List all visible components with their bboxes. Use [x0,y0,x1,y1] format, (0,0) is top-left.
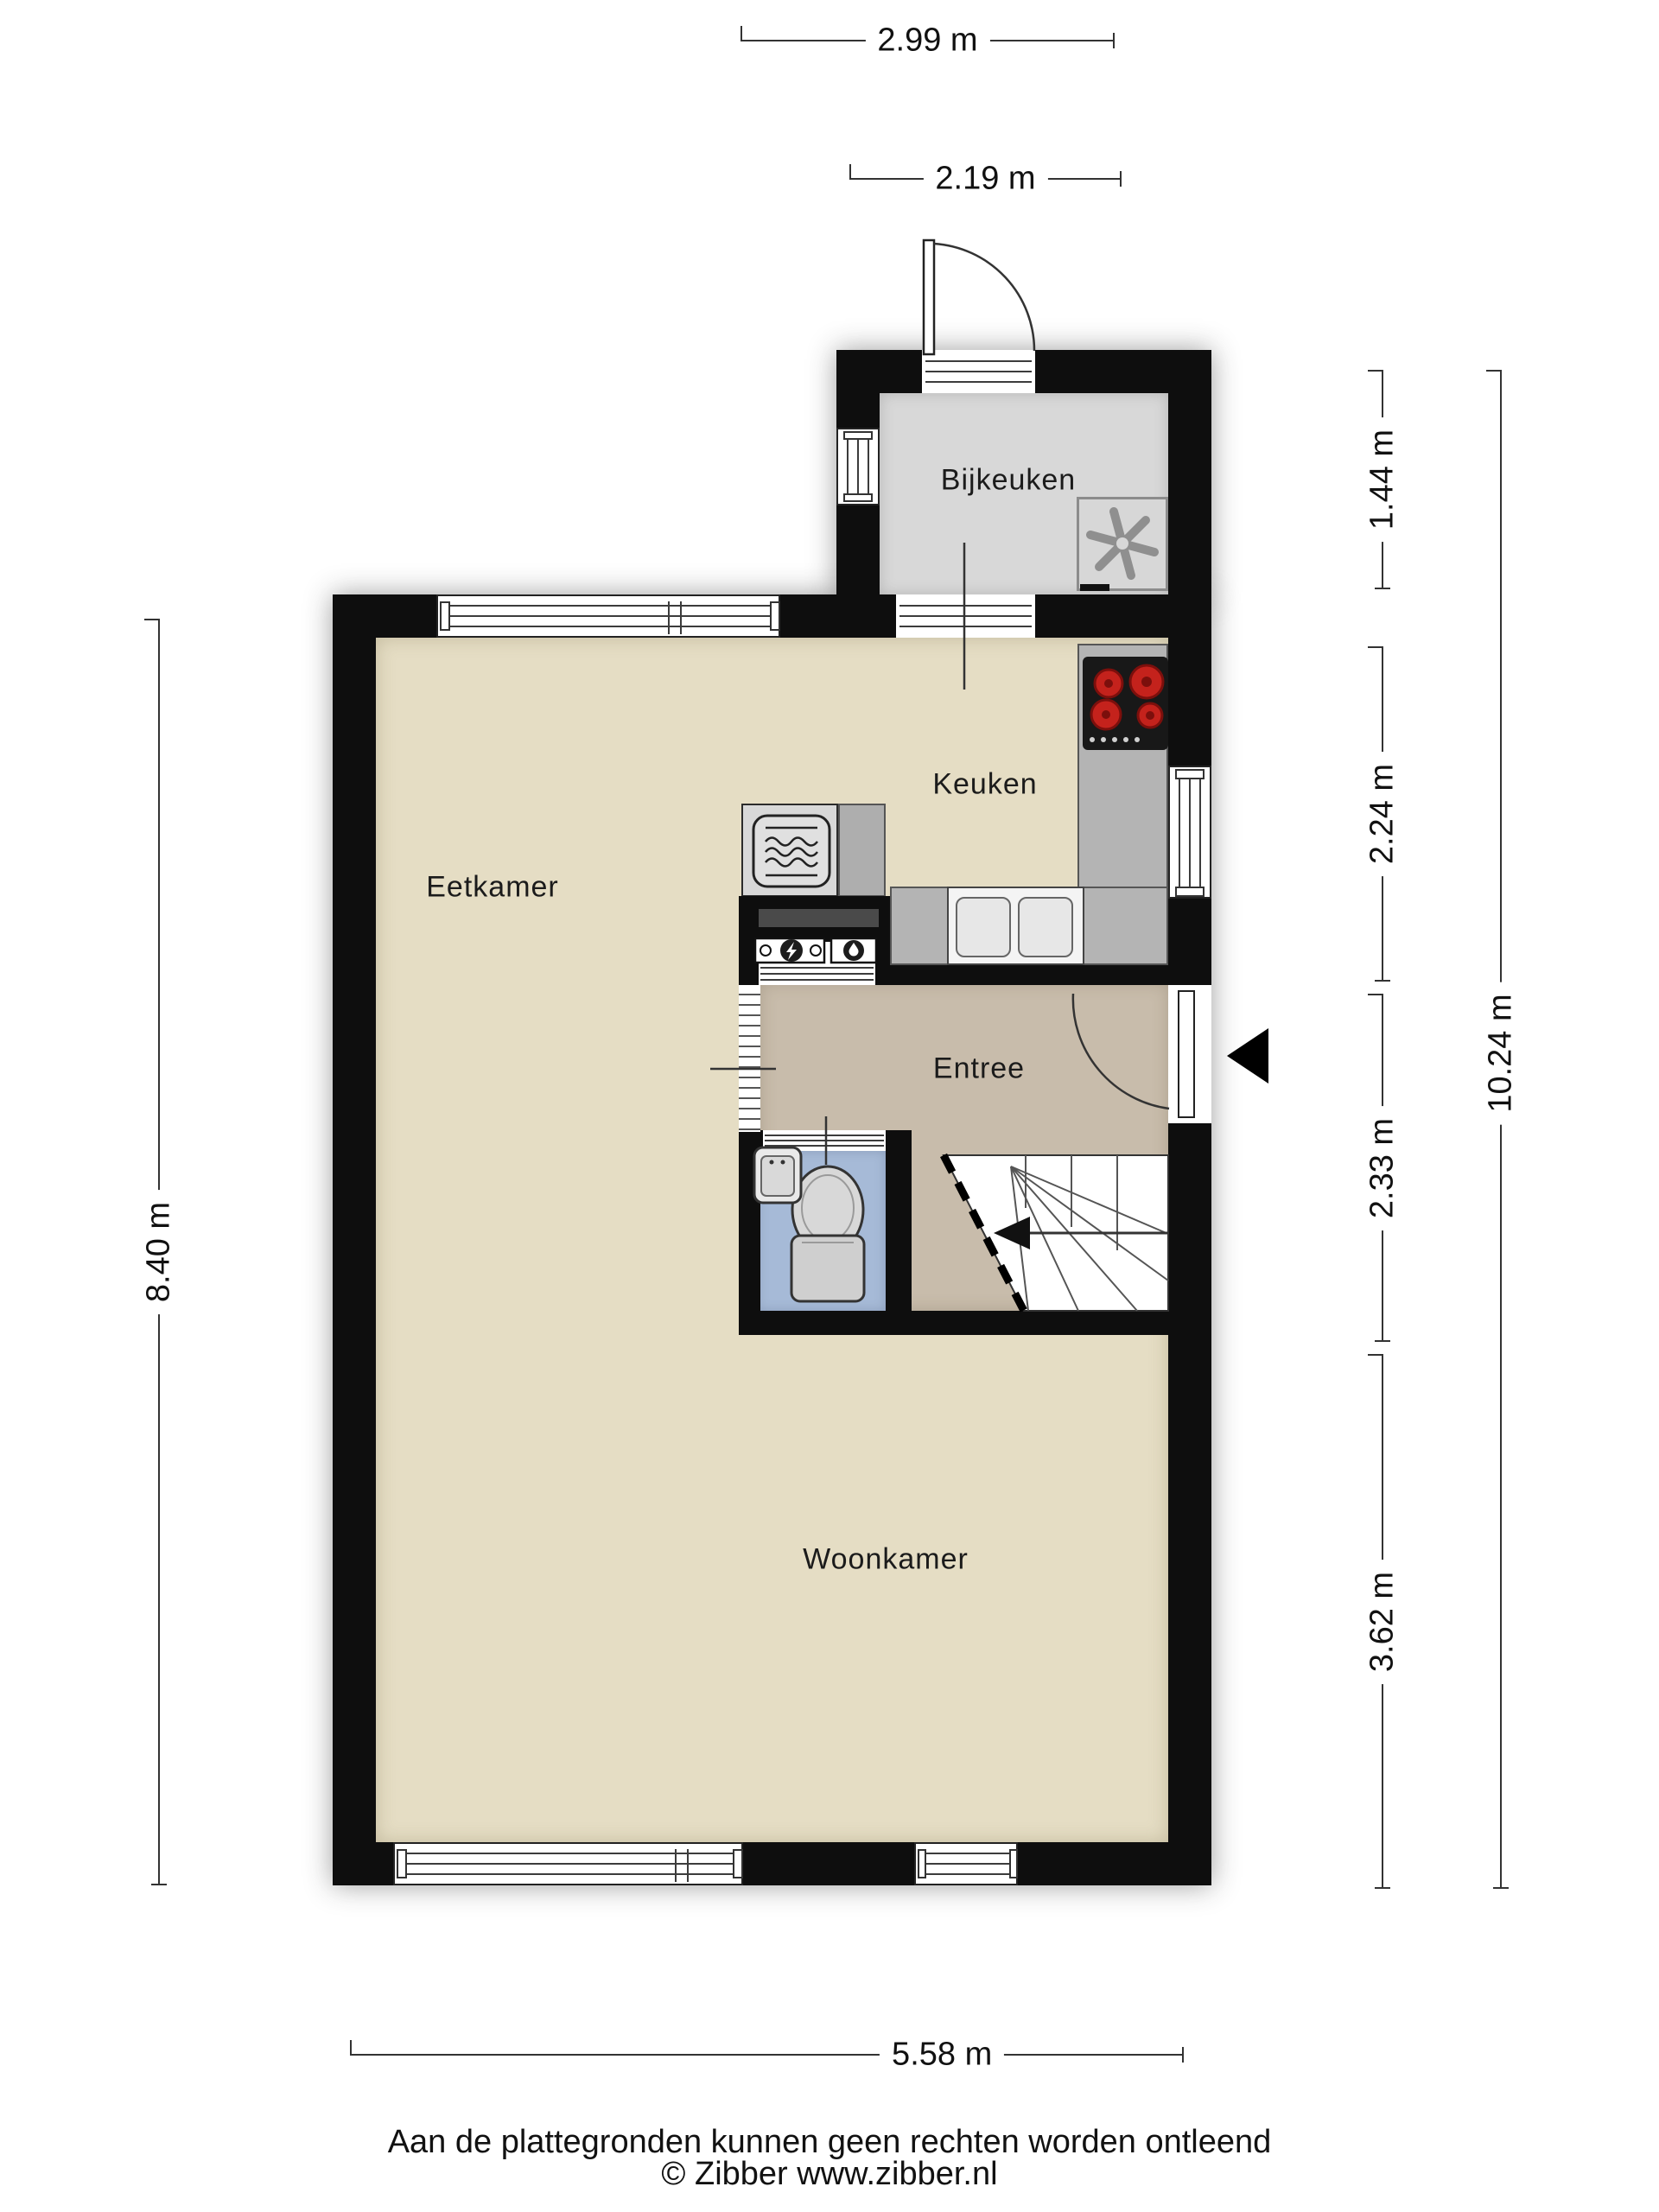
dimension-label: 2.24 m [1363,752,1403,876]
dimension-label: 8.40 m [139,1190,180,1314]
dimension-left-height: 8.40 m [152,619,166,1885]
room-label-bijkeuken: Bijkeuken [941,464,1076,498]
plan-linework [0,0,1659,2212]
room-label-keuken: Keuken [932,768,1037,802]
entrance-arrow-icon [1227,1028,1268,1084]
hand-basin-icon [754,1147,801,1203]
staircase [944,1155,1168,1311]
room-label-entree: Entree [933,1052,1025,1086]
dimension-label: 2.19 m [923,159,1047,200]
dimension-label: 3.62 m [1363,1559,1403,1683]
microwave-icon [753,816,829,887]
dimension-label: 1.44 m [1363,417,1403,542]
dimension-label: 10.24 m [1481,982,1522,1124]
dimension-right-woonkamer: 3.62 m [1376,1354,1389,1889]
dimension-right-total: 10.24 m [1494,370,1508,1889]
dimension-backdoor-width: 2.19 m [849,172,1122,186]
backdoor-swing [924,240,1034,354]
dimension-top-width: 2.99 m [741,34,1115,48]
dimension-label: 2.99 m [865,21,989,61]
dimension-right-bijkeuken: 1.44 m [1376,370,1389,589]
toilet-icon [791,1166,864,1301]
electric-meter-icon [755,938,824,963]
room-label-eetkamer: Eetkamer [426,871,559,905]
washing-machine-fan [1090,512,1154,575]
dimension-label: 2.33 m [1363,1105,1403,1230]
stove-burners [1090,665,1163,742]
dimension-right-entree: 2.33 m [1376,994,1389,1342]
dimension-right-keuken: 2.24 m [1376,646,1389,982]
water-heater-icon [831,938,876,963]
room-label-woonkamer: Woonkamer [803,1543,969,1577]
door-swing-arc [1073,994,1169,1109]
floorplan-page: Bijkeuken Keuken Eetkamer Entree Woonkam… [0,0,1659,2212]
dimension-label: 5.58 m [880,2035,1004,2075]
footer-credit: © Zibber www.zibber.nl [661,2156,997,2193]
dimension-bottom-width: 5.58 m [350,2048,1184,2062]
